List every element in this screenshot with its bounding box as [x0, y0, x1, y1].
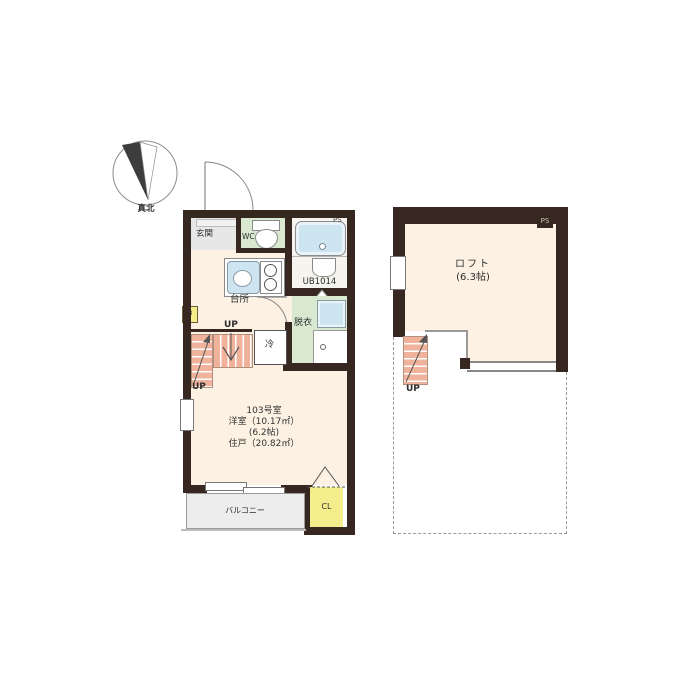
fridge-label: 冷 [254, 340, 285, 351]
washer-pan-icon [317, 300, 346, 328]
wall-right [347, 210, 355, 535]
wall-bottom-left [183, 485, 207, 493]
entrance-door-arc [195, 156, 261, 216]
dressing-label: 脱衣 [294, 318, 312, 329]
washer-space-icon [313, 330, 348, 364]
balcony-sliding-door [205, 482, 247, 491]
washer-drain [320, 344, 326, 350]
sink-drain [233, 270, 252, 287]
kitchen-label: 台所 [230, 294, 249, 305]
compass-label: 真北 [127, 204, 165, 215]
up-label-lower: UP [192, 382, 206, 393]
wall [236, 218, 241, 252]
room-area-label: 洋室（10.17㎡） [194, 417, 334, 428]
room-tatami-label: (6.2帖) [194, 428, 334, 439]
loft-window-left [390, 256, 406, 290]
loft-label: ロフト [428, 259, 518, 270]
up-label-upper: UP [224, 320, 238, 331]
room-number-label: 103号室 [194, 406, 334, 417]
wall-top [183, 210, 355, 218]
closet-door-mark [306, 464, 348, 490]
loft-wall-right [556, 207, 568, 372]
bath-counter-line [292, 256, 347, 257]
stove-burner [264, 264, 277, 277]
compass-icon [108, 138, 180, 210]
stove-burner [264, 278, 277, 291]
wall [236, 248, 292, 253]
bathtub-icon [295, 221, 346, 256]
wc-label: WC [242, 231, 255, 242]
wall [285, 218, 292, 296]
wall [304, 527, 355, 535]
dashed-outline-bottom [393, 533, 567, 534]
floorplan-page: 真北 玄関 WC UB1014 PS 台所 脱衣 [0, 0, 700, 700]
loft-railing-bottom [467, 361, 556, 372]
washbasin-icon [312, 258, 336, 277]
loft-size-label: (6.3帖) [428, 272, 518, 283]
ps-label-loft: PS [537, 216, 553, 227]
bathtub-drain [319, 243, 326, 250]
closet-label: CL [310, 501, 343, 512]
loft-stairs-arrow [398, 330, 472, 390]
room-info-block: 103号室 洋室（10.17㎡） (6.2帖) 住戸（20.82㎡） [194, 406, 334, 450]
balcony-outer-line [181, 529, 306, 531]
dashed-outline-right [566, 372, 567, 534]
dashed-outline-left [393, 337, 394, 534]
wall [283, 363, 355, 371]
loft-up-label: UP [406, 384, 420, 395]
unit-area-label: 住戸（20.82㎡） [194, 439, 334, 450]
balcony-label: バルコニー [210, 505, 280, 516]
entrance-label: 玄関 [196, 229, 213, 240]
wall-left [183, 210, 191, 493]
window-left [180, 399, 194, 431]
